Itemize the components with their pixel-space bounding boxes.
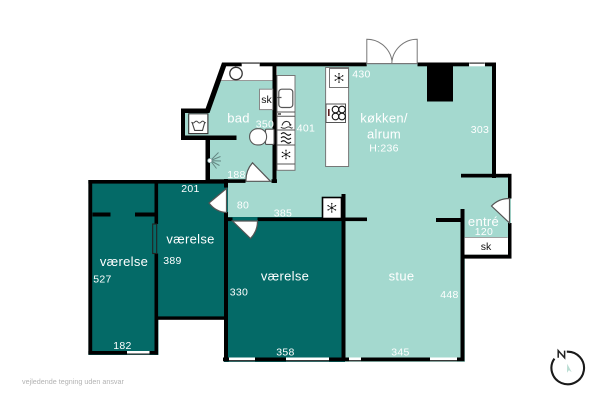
- svg-text:80: 80: [237, 200, 249, 212]
- svg-text:389: 389: [163, 255, 181, 267]
- svg-text:vejledende tegning uden ansvar: vejledende tegning uden ansvar: [22, 377, 125, 386]
- svg-text:358: 358: [276, 347, 294, 359]
- svg-text:527: 527: [93, 274, 111, 286]
- svg-text:120: 120: [475, 226, 493, 238]
- svg-text:værelse: værelse: [100, 254, 148, 269]
- svg-text:201: 201: [181, 183, 199, 195]
- svg-text:alrum: alrum: [367, 127, 401, 142]
- svg-text:sk: sk: [481, 241, 492, 253]
- svg-text:430: 430: [352, 69, 370, 81]
- svg-text:303: 303: [471, 124, 489, 136]
- svg-text:330: 330: [230, 287, 248, 299]
- svg-text:bad: bad: [227, 111, 250, 126]
- svg-text:448: 448: [440, 289, 458, 301]
- svg-text:køkken/: køkken/: [360, 111, 408, 126]
- svg-text:350: 350: [256, 119, 274, 131]
- svg-text:H:236: H:236: [369, 143, 399, 155]
- svg-text:188: 188: [227, 169, 245, 181]
- svg-text:385: 385: [274, 208, 292, 220]
- svg-text:værelse: værelse: [261, 269, 309, 284]
- svg-text:stue: stue: [389, 269, 415, 284]
- svg-text:182: 182: [113, 340, 131, 352]
- svg-text:345: 345: [391, 347, 409, 359]
- svg-text:værelse: værelse: [166, 232, 214, 247]
- svg-text:401: 401: [297, 123, 315, 135]
- svg-text:sk: sk: [261, 94, 272, 106]
